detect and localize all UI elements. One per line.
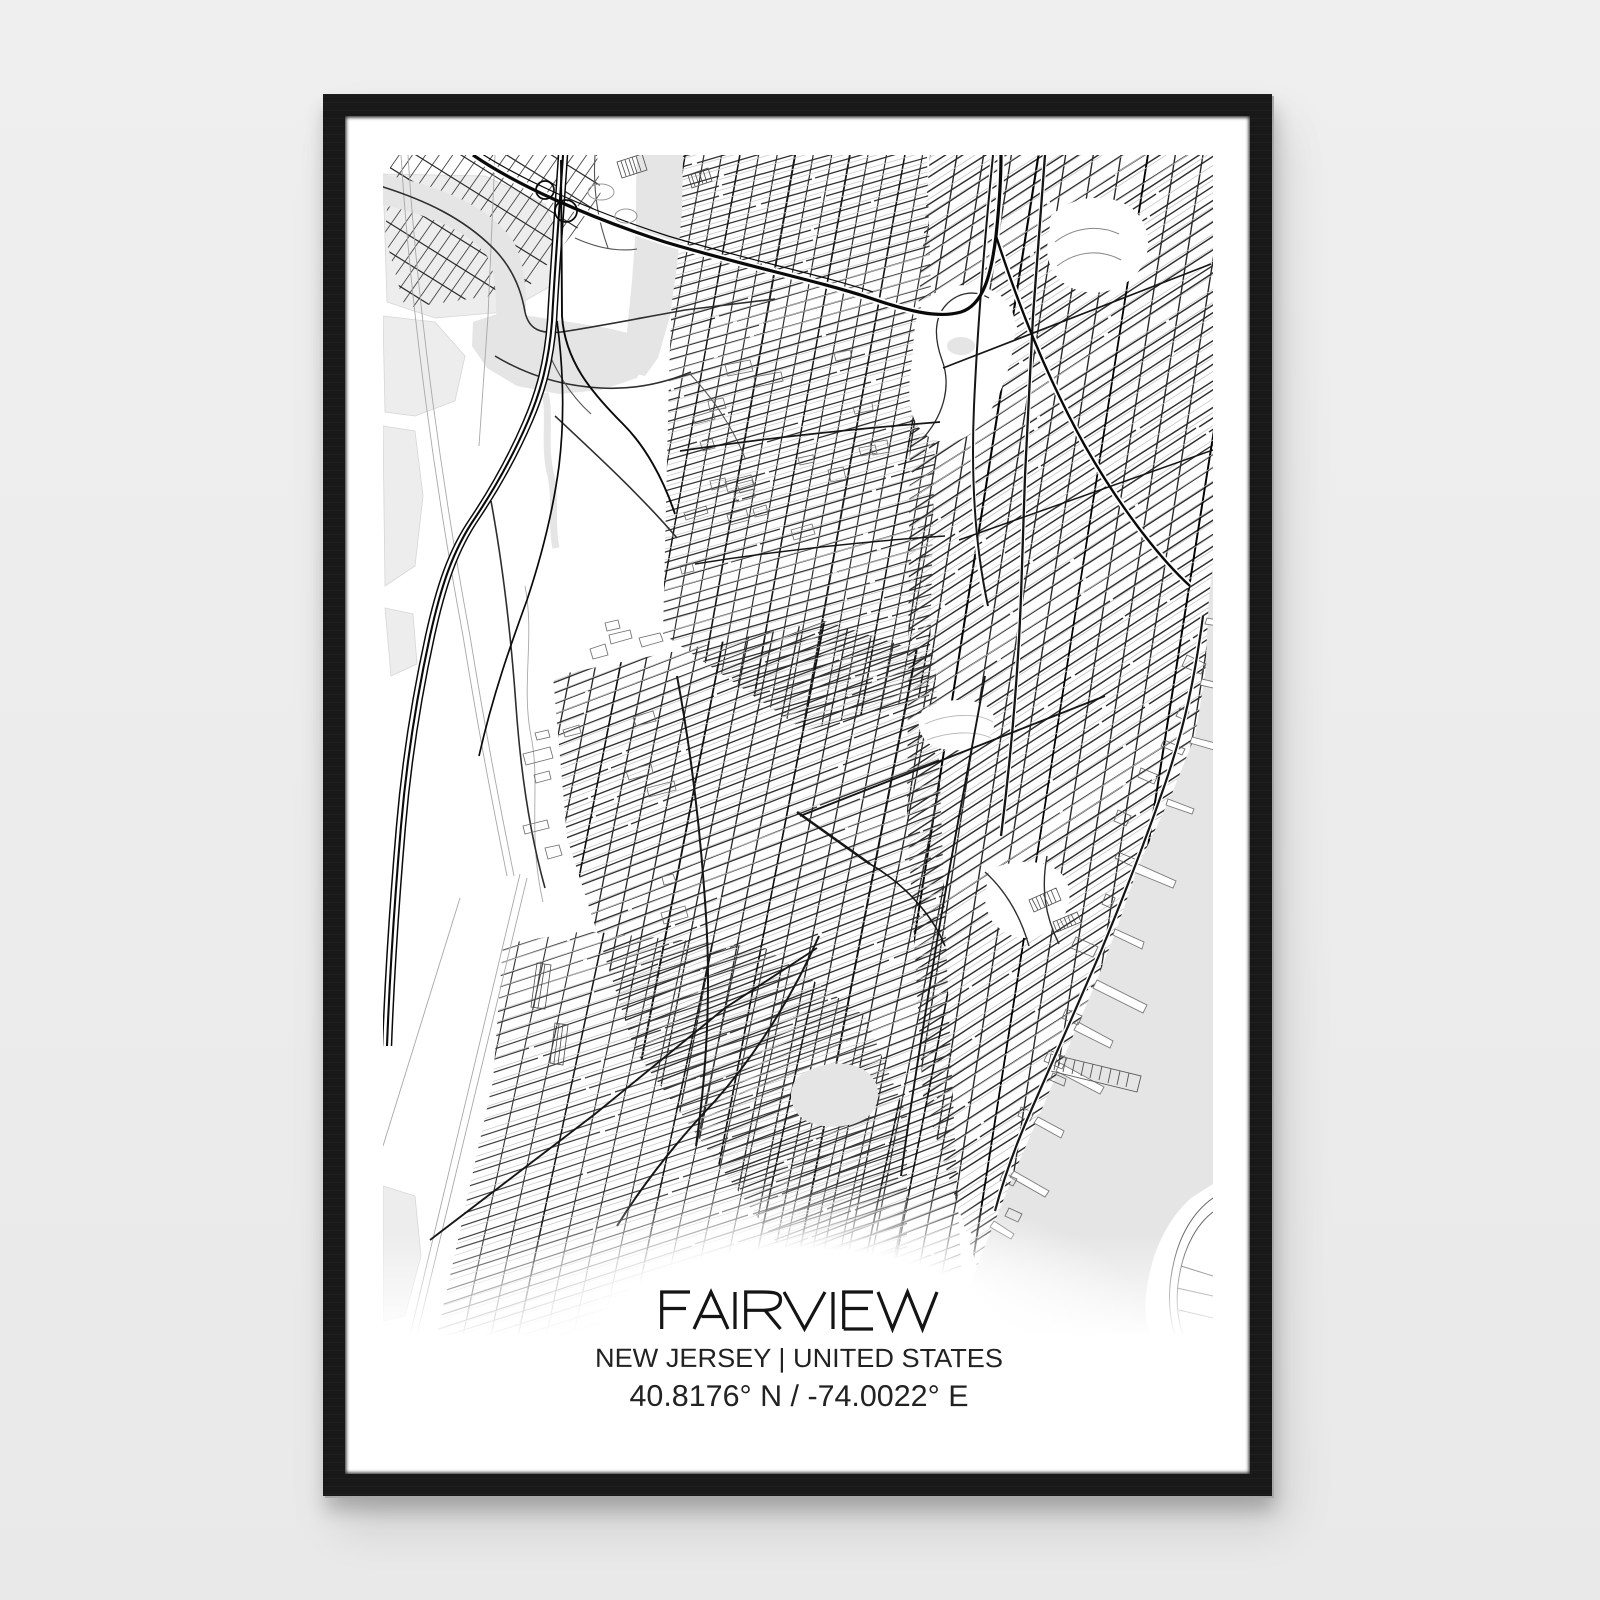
svg-text:40.8176° N / -74.0022° E: 40.8176° N / -74.0022° E xyxy=(629,1380,968,1413)
svg-text:NEW JERSEY | UNITED STATES: NEW JERSEY | UNITED STATES xyxy=(595,1343,1003,1373)
